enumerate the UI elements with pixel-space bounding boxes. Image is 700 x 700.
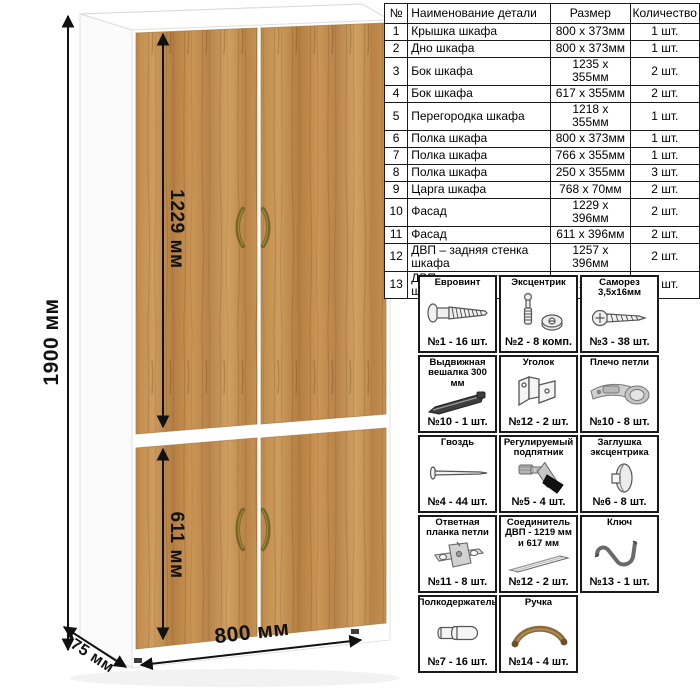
hardware-title: Эксцентрик [511,278,566,288]
hardware-cell-empty [580,595,659,673]
part-num: 12 [385,243,408,271]
hardware-grid: Евровинт №1 - 16 шт. Эксцентрик [418,275,659,673]
hardware-count: №13 - 1 шт. [589,577,649,589]
lower-door-dimension-label: 611 мм [165,503,187,587]
table-row: 6Полка шкафа800 х 373мм1 шт. [385,130,700,147]
part-num: 8 [385,164,408,181]
part-num: 5 [385,102,408,130]
hardware-title: Ключ [607,518,632,528]
hardware-title: Заглушка эксцентрика [583,438,656,459]
page-canvas: 1900 мм 1229 мм 611 мм 800 мм 375 мм № Н… [0,0,700,700]
part-num: 7 [385,147,408,164]
hardware-count: №2 - 8 комп. [505,337,572,349]
part-num: 10 [385,198,408,226]
part-qty: 2 шт. [630,181,699,198]
part-qty: 3 шт. [630,164,699,181]
hardware-count: №7 - 16 шт. [427,657,487,669]
hardware-count: №5 - 4 шт. [512,497,566,509]
hardware-title: Уголок [523,358,554,368]
part-qty: 2 шт. [630,243,699,271]
part-size: 800 х 373мм [551,130,630,147]
hardware-count: №3 - 38 шт. [589,337,649,349]
hardware-count: №6 - 8 шт. [593,497,647,509]
part-size: 611 х 396мм [551,226,630,243]
part-size: 250 х 355мм [551,164,630,181]
hdf-connector-icon [506,549,572,577]
header-name: Наименование детали [408,4,551,24]
table-row: 2Дно шкафа800 х 373мм1 шт. [385,41,700,58]
table-row: 1Крышка шкафа800 х 373мм1 шт. [385,24,700,41]
hardware-count: №1 - 16 шт. [427,337,487,349]
header-size: Размер [551,4,630,24]
eccentric-cam-icon [506,288,572,337]
table-row: 8Полка шкафа250 х 355мм3 шт. [385,164,700,181]
part-num: 3 [385,58,408,86]
pullout-hanger-icon [425,389,491,417]
header-qty: Количество [630,4,699,24]
hardware-count: №4 - 44 шт. [427,497,487,509]
handle-icon [507,608,571,657]
part-name: Перегородка шкафа [408,102,551,130]
hardware-cell-zaglushka: Заглушка эксцентрика №6 - 8 шт. [580,435,659,513]
hinge-arm-icon [587,368,653,417]
table-row: 9Царга шкафа768 х 70мм2 шт. [385,181,700,198]
part-num: 11 [385,226,408,243]
hinge-plate-icon [427,539,489,578]
table-row: 11Фасад611 х 396мм2 шт. [385,226,700,243]
part-name: Бок шкафа [408,58,551,86]
part-size: 617 х 355мм [551,85,630,102]
part-name: Крышка шкафа [408,24,551,41]
hardware-cell-veshalka: Выдвижная вешалка 300 мм №10 - 1 шт. [418,355,497,433]
hardware-title: Выдвижная вешалка 300 мм [421,358,494,389]
part-size: 800 х 373мм [551,41,630,58]
part-name: Полка шкафа [408,164,551,181]
hardware-count: №14 - 4 шт. [508,657,568,669]
part-qty: 1 шт. [630,102,699,130]
hardware-cell-klyuch: Ключ №13 - 1 шт. [580,515,659,593]
part-name: ДВП – задняя стенка шкафа [408,243,551,271]
header-num: № [385,4,408,24]
hardware-title: Регулируемый подпятник [502,438,575,459]
screw-icon [589,299,651,338]
hardware-cell-podpyatnik: Регулируемый подпятник №5 - 4 шт. [499,435,578,513]
hardware-title: Плечо петли [590,358,649,368]
wardrobe-door-lower-right [261,428,386,636]
parts-table: № Наименование детали Размер Количество … [384,3,700,299]
part-name: Полка шкафа [408,147,551,164]
table-row: 12ДВП – задняя стенка шкафа1257 х 396мм2… [385,243,700,271]
part-name: Царга шкафа [408,181,551,198]
hardware-cell-plecho: Плечо петли №10 - 8 шт. [580,355,659,433]
hardware-title: Полкодержатель [418,598,497,608]
table-row: 4Бок шкафа617 х 355мм2 шт. [385,85,700,102]
part-num: 9 [385,181,408,198]
part-qty: 1 шт. [630,147,699,164]
nail-icon [426,448,490,497]
table-row: 5Перегородка шкафа1218 х 355мм1 шт. [385,102,700,130]
hardware-cell-planka: Ответная планка петли №11 - 8 шт. [418,515,497,593]
corner-bracket-icon [509,368,569,417]
table-row: 10Фасад1229 х 396мм2 шт. [385,198,700,226]
hardware-title: Евровинт [435,278,481,288]
table-row: 7Полка шкафа766 х 355мм1 шт. [385,147,700,164]
part-qty: 2 шт. [630,58,699,86]
hardware-count: №12 - 2 шт. [508,577,568,589]
hardware-cell-eccentric: Эксцентрик №2 - 8 комп. [499,275,578,353]
hardware-count: №11 - 8 шт. [428,577,488,589]
hardware-cell-ugolok: Уголок №12 - 2 шт. [499,355,578,433]
parts-table-header-row: № Наименование детали Размер Количество [385,4,700,24]
hardware-cell-gvozd: Гвоздь №4 - 44 шт. [418,435,497,513]
part-size: 766 х 355мм [551,147,630,164]
part-qty: 1 шт. [630,24,699,41]
part-num: 4 [385,85,408,102]
part-name: Полка шкафа [408,130,551,147]
shelf-pin-icon [431,608,485,657]
upper-door-dimension-label: 1229 мм [165,183,187,275]
hardware-cell-ruchka: Ручка №14 - 4 шт. [499,595,578,673]
part-size: 1257 х 396мм [551,243,630,271]
part-num: 13 [385,271,408,299]
part-size: 1235 х 355мм [551,58,630,86]
hardware-title: Соединитель ДВП - 1219 мм и 617 мм [502,518,575,549]
cam-cover-icon [598,459,642,498]
part-num: 6 [385,130,408,147]
hardware-title: Саморез 3,5х16мм [583,278,656,299]
part-size: 1218 х 355мм [551,102,630,130]
hardware-cell-samorez: Саморез 3,5х16мм №3 - 38 шт. [580,275,659,353]
part-size: 768 х 70мм [551,181,630,198]
hardware-cell-polkoderzhatel: Полкодержатель №7 - 16 шт. [418,595,497,673]
part-name: Фасад [408,226,551,243]
euroscrew-icon [425,288,491,337]
hardware-title: Гвоздь [441,438,474,448]
key-icon [591,528,649,577]
hardware-cell-soedinitel: Соединитель ДВП - 1219 мм и 617 мм №12 -… [499,515,578,593]
part-size: 800 х 373мм [551,24,630,41]
part-num: 2 [385,41,408,58]
adjustable-foot-icon [511,459,567,498]
part-qty: 1 шт. [630,130,699,147]
wardrobe-side-panel [80,14,132,668]
part-name: Фасад [408,198,551,226]
hardware-title: Ручка [525,598,552,608]
hardware-count: №12 - 2 шт. [508,417,568,429]
hardware-count: №10 - 8 шт. [589,417,649,429]
part-size: 1229 х 396мм [551,198,630,226]
part-qty: 2 шт. [630,226,699,243]
part-qty: 2 шт. [630,85,699,102]
part-num: 1 [385,24,408,41]
part-name: Бок шкафа [408,85,551,102]
part-qty: 2 шт. [630,198,699,226]
table-row: 3Бок шкафа1235 х 355мм2 шт. [385,58,700,86]
wardrobe-door-upper-right [261,23,386,424]
part-name: Дно шкафа [408,41,551,58]
hardware-count: №10 - 1 шт. [427,417,487,429]
hardware-title: Ответная планка петли [421,518,494,539]
part-qty: 1 шт. [630,41,699,58]
hardware-cell-eurovint: Евровинт №1 - 16 шт. [418,275,497,353]
height-dimension-label: 1900 мм [40,294,64,390]
